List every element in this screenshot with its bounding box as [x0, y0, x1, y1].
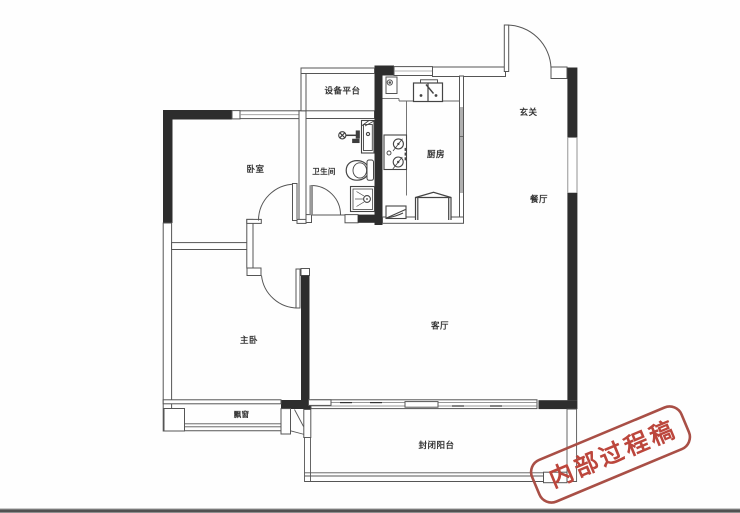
svg-text:卧室: 卧室 [246, 164, 264, 174]
svg-text:飘窗: 飘窗 [234, 409, 250, 419]
svg-text:厨房: 厨房 [427, 149, 445, 159]
svg-text:封闭阳台: 封闭阳台 [418, 440, 454, 450]
svg-text:主卧: 主卧 [240, 335, 258, 345]
svg-text:餐厅: 餐厅 [529, 194, 548, 204]
svg-text:设备平台: 设备平台 [324, 86, 360, 96]
svg-text:玄关: 玄关 [519, 107, 537, 117]
svg-text:卫生间: 卫生间 [312, 166, 335, 176]
svg-text:内部过程稿: 内部过程稿 [545, 415, 681, 493]
svg-text:客厅: 客厅 [430, 321, 449, 331]
